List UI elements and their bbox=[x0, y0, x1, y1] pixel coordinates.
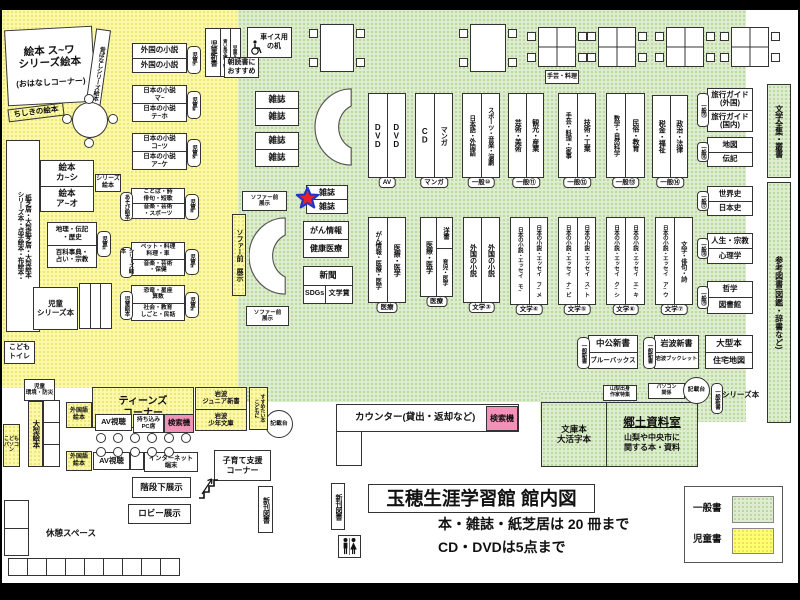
legend-general-label: 一般書 bbox=[693, 504, 722, 515]
chair[interactable] bbox=[638, 53, 647, 62]
shelf-column: 児童新書 bbox=[206, 29, 220, 76]
children-5-badge: 児童⑤ bbox=[187, 139, 201, 167]
shelf-column: 観光・産業 bbox=[526, 94, 544, 177]
chair[interactable] bbox=[655, 32, 664, 41]
large-picture-books-shelf: 大型絵本 bbox=[28, 401, 43, 467]
shelf-column: 洋書育児・医学 bbox=[436, 218, 452, 296]
shelf-cell: 文学賞 bbox=[326, 286, 352, 304]
chair[interactable] bbox=[113, 433, 123, 443]
shelf-cell: 岩波 ジュニア新書 bbox=[196, 388, 246, 409]
shelf-cell: ブルーバックス bbox=[589, 352, 637, 369]
new-books-shelf: 新刊図書 bbox=[331, 483, 345, 530]
bunko-large-print-shelf: 文庫本 大活字本 bbox=[542, 403, 607, 466]
iwanami-shinsho-shelf: 岩波新書 岩波ブックレット bbox=[654, 335, 699, 369]
chair[interactable] bbox=[108, 114, 118, 124]
shelf-column: 数学・自然科学 bbox=[607, 94, 625, 177]
newspaper-shelf: 新聞 SDGs 文学賞 bbox=[303, 266, 353, 304]
rest-space-seats bbox=[8, 558, 180, 576]
shelf-cell: 音楽・芸術 ・スポーツ bbox=[132, 203, 184, 218]
children-6-badge: 児童⑥ bbox=[187, 91, 201, 119]
shelf-cell: 外国の小説 bbox=[133, 58, 186, 73]
restroom-icon bbox=[338, 535, 361, 558]
shelf-category-badge: 文学③ bbox=[468, 302, 495, 313]
sofa-crescent[interactable] bbox=[249, 211, 289, 301]
writing-stand: 記載台 bbox=[265, 410, 293, 438]
library-floor-map: 絵本 ス~ワ シリーズ絵本 (おはなしコーナー) 昔ばなしシリーズ絵本 ちしきの… bbox=[0, 0, 800, 600]
bookshelf-unit: 世界史日本史一般⑰ bbox=[707, 186, 753, 216]
loan-rule-av: CD・DVDは5点まで bbox=[438, 537, 566, 557]
shelf-section: 育児・医学 bbox=[437, 248, 452, 296]
reading-table bbox=[598, 27, 636, 67]
shelf-column: 外国の小説 bbox=[464, 218, 481, 302]
chair[interactable] bbox=[164, 433, 174, 443]
shelf-cell: 伝記 bbox=[708, 152, 752, 167]
shelf-cell: 旅行ガイド (国内) bbox=[708, 110, 752, 132]
chair[interactable] bbox=[720, 32, 729, 41]
reading-table bbox=[470, 24, 506, 72]
chair[interactable] bbox=[459, 58, 468, 67]
chair[interactable] bbox=[130, 433, 140, 443]
chair[interactable] bbox=[113, 447, 123, 457]
av-viewing-seat[interactable]: AV視聴 bbox=[95, 414, 132, 431]
shelf-category-badge: 一般⑮ bbox=[697, 93, 709, 127]
children-jp-novels-ma-shelf: 日本の小説 マ~ 日本の小説 テ~ホ bbox=[132, 85, 187, 122]
craft-cooking-label: 手芸・料理 bbox=[545, 70, 579, 84]
shelf-cell: 絵本 ア~オ bbox=[41, 186, 93, 212]
sofa-front-display-rack: ソファー前 展示 bbox=[232, 214, 246, 296]
foreign-language-picture-books: 外国語 絵本 bbox=[66, 451, 92, 471]
play-picture-books-badge: あそび絵本 bbox=[120, 192, 133, 221]
children-3-badge: 児童③ bbox=[185, 249, 199, 275]
shelf-cell: 音楽・芸術 ・保健 bbox=[132, 259, 184, 276]
chair[interactable] bbox=[147, 447, 157, 457]
shelf-line: すすめたい本 bbox=[259, 394, 265, 422]
shelf-category-badge: 一般⑭ bbox=[656, 177, 684, 188]
shelf-cell: 新聞 bbox=[304, 267, 352, 285]
series-books-label: シリーズ本 bbox=[722, 389, 768, 401]
shelf-column: 日本の小説・エッセイ ク~シ bbox=[607, 218, 625, 304]
series-picture-books-badge: シリーズ絵本 bbox=[120, 247, 133, 278]
reading-table bbox=[320, 24, 354, 72]
chair[interactable] bbox=[84, 94, 94, 104]
shelf-category-badge: AV bbox=[379, 177, 396, 188]
chair[interactable] bbox=[130, 447, 140, 457]
reading-table bbox=[538, 27, 576, 67]
shelf-column: 文学・俳句・詩 bbox=[674, 218, 693, 304]
shelf-cell: がん情報 bbox=[304, 222, 348, 239]
bookshelf-unit: 外国の小説外国の小説文学③ bbox=[463, 217, 500, 303]
shelf-cell: 岩波新書 bbox=[655, 336, 698, 352]
shelf-cell: 旅行ガイド (外国) bbox=[708, 89, 752, 110]
bookshelf-unit: がん情報・医療・医学医療・医学医療 bbox=[368, 217, 406, 303]
shelf-cell: 外国の小説 bbox=[133, 44, 186, 58]
shelf-column: 日本の小説・エッセイ ナ~ビ bbox=[559, 218, 577, 304]
shelf-column: 外国の小説 bbox=[481, 218, 499, 302]
shelf-cell: 雑誌 bbox=[256, 108, 298, 125]
chair[interactable] bbox=[309, 29, 318, 38]
writing-stand: 記載台 bbox=[683, 377, 710, 404]
bookshelf-unit: CDマンガマンガ bbox=[415, 93, 453, 178]
reading-table bbox=[666, 27, 704, 67]
chair[interactable] bbox=[181, 433, 191, 443]
children-series-shelf: 児童 シリーズ本 bbox=[33, 287, 78, 330]
shelf-column: 日本語・外国語 bbox=[463, 94, 481, 177]
map-title: 玉穂生涯学習館 館内図 bbox=[368, 484, 595, 513]
shelf-line: シリーズ本・点字絵本・布絵本・ bbox=[16, 191, 23, 281]
shelf-column: スポーツ・音楽・演劇 bbox=[481, 94, 500, 177]
shelf-cell: 住宅地図 bbox=[706, 352, 752, 369]
shelf-cell: 中公新書 bbox=[589, 336, 637, 352]
shelf-cell: ペット・料理 料理・車 bbox=[132, 243, 184, 259]
children-pets-cooking-shelf: ペット・料理 料理・車 音楽・芸術 ・保健 bbox=[131, 242, 185, 276]
shelf-category-badge: 一般⑩ bbox=[468, 177, 495, 188]
shelf-column: 日本の小説・エッセイ エ~キ bbox=[625, 218, 644, 304]
chair[interactable] bbox=[706, 53, 715, 62]
bookshelf-unit: 手芸・料理・家事技術・工業一般⑫ bbox=[558, 93, 596, 178]
map-area: 絵本 ス~ワ シリーズ絵本 (おはなしコーナー) 昔ばなしシリーズ絵本 ちしきの… bbox=[0, 0, 800, 600]
shelf-category-badge: 一般⑫ bbox=[563, 177, 591, 188]
shelf-cell: 恐竜・星座 算数 bbox=[132, 286, 184, 303]
shelf-column: DVD bbox=[387, 94, 406, 177]
children-picture-books-badge: 児童絵本 bbox=[120, 291, 133, 320]
shelf-cell: 日本の小説 マ~ bbox=[133, 86, 186, 103]
computer-books-display: パソコン 関係 bbox=[648, 383, 685, 399]
chair[interactable] bbox=[84, 138, 94, 148]
chair[interactable] bbox=[164, 447, 174, 457]
opac-terminal[interactable]: 検索機 bbox=[164, 414, 194, 433]
shelf-category-badge: マンガ bbox=[420, 177, 448, 188]
magazine-shelf: 雑誌 雑誌 bbox=[255, 91, 299, 126]
shelf-category-badge: 医療 bbox=[426, 296, 447, 307]
bookshelf-unit: 人生・宗教心理学一般⑱ bbox=[707, 233, 753, 264]
chair[interactable] bbox=[706, 32, 715, 41]
chair[interactable] bbox=[459, 29, 468, 38]
shelf-cell: 哲学 bbox=[708, 282, 752, 297]
shelf-category-badge: 一般⑰ bbox=[697, 191, 709, 211]
stairs-icon bbox=[197, 472, 219, 500]
shelf-category-badge: 文学⑥ bbox=[612, 304, 639, 315]
parenting-support-corner: 子育て支援 コーナー bbox=[214, 450, 271, 481]
reference-books-shelf: 参考図書(図鑑・辞書など) bbox=[767, 182, 791, 423]
shelf-category-badge: 文学④ bbox=[516, 304, 543, 315]
shelf-column: DVD bbox=[369, 94, 387, 177]
chair[interactable] bbox=[771, 32, 780, 41]
chair[interactable] bbox=[655, 53, 664, 62]
children-language-arts-shelf: ことば・詩 俳句・短歌 音楽・芸術 ・スポーツ bbox=[131, 188, 185, 219]
chair[interactable] bbox=[356, 29, 365, 38]
rest-space-label: 休憩スペース bbox=[46, 527, 116, 539]
legend-children-label: 児童書 bbox=[693, 535, 722, 546]
new-books-shelf: 新刊図書 bbox=[258, 486, 273, 533]
shelf-cell: 心理学 bbox=[708, 248, 752, 263]
yamanashi-authors-display: 山梨出身 作家特集 bbox=[603, 385, 637, 401]
shelf-cell: 岩波 少年文庫 bbox=[196, 409, 246, 431]
chuko-shinsho-shelf: 中公新書 ブルーバックス bbox=[588, 335, 638, 369]
bookshelf-unit: 日本の小説・エッセイ モ~日本の小説・エッセイ フ~メ文学④ bbox=[510, 217, 548, 305]
shelf-cell: 人生・宗教 bbox=[708, 234, 752, 248]
general-shinsho-badge: 一般新書 bbox=[643, 337, 656, 369]
kids-computer[interactable]: こども パソコン bbox=[3, 424, 20, 467]
shelf-column: がん情報・医療・医学 bbox=[369, 218, 387, 302]
shelf-category-badge: 文学⑤ bbox=[564, 304, 591, 315]
bookshelf-unit: 日本の小説・エッセイ ク~シ日本の小説・エッセイ エ~キ文学⑥ bbox=[606, 217, 645, 305]
shelf-column: 日本の小説・エッセイ ア~ウ bbox=[656, 218, 674, 304]
shelf-line: 紙芝居・大型紙芝居・大型絵本 bbox=[23, 194, 30, 278]
shelf-section: 洋書 bbox=[437, 218, 452, 248]
chair[interactable] bbox=[638, 32, 647, 41]
legend: 一般書 児童書 bbox=[684, 486, 783, 563]
magazine-shelf: 雑誌 雑誌 bbox=[255, 132, 299, 167]
shelf-column: 政治・法律 bbox=[670, 96, 688, 177]
iwanami-junior-shelf: 岩波 ジュニア新書 岩波 少年文庫 bbox=[195, 387, 247, 431]
sofa-front-display: ソファー前 展示 bbox=[242, 191, 287, 211]
children-2-badge: 児童② bbox=[185, 292, 199, 318]
shelf-cell: 地図 bbox=[708, 138, 752, 152]
shelf-cell: SDGs bbox=[304, 286, 326, 304]
service-counter-return bbox=[336, 431, 362, 466]
round-table bbox=[72, 102, 108, 138]
shelf-category-badge: 一般⑪ bbox=[512, 177, 540, 188]
picture-books-ka-shi-shelf: 絵本 カ~シ 絵本 ア~オ bbox=[40, 160, 94, 212]
shelf-cell: 地理・伝記 ・歴史 bbox=[48, 223, 96, 245]
shelf-cell: 雑誌 bbox=[256, 92, 298, 108]
large-books-shelf: 大型本 住宅地図 bbox=[705, 335, 753, 369]
chair[interactable] bbox=[527, 53, 536, 62]
legend-row: 児童書 bbox=[693, 528, 774, 554]
legend-row: 一般書 bbox=[693, 496, 774, 523]
bookshelf-unit: 日本の小説・エッセイ ナ~ビ日本の小説・エッセイ ス~ト文学⑤ bbox=[558, 217, 596, 305]
shelf-cell: 世界史 bbox=[708, 187, 752, 201]
shelf-column: 日本の小説・エッセイ モ~ bbox=[511, 218, 529, 304]
shelf-rack bbox=[4, 500, 29, 556]
shelf-category-badge: 一般⑱ bbox=[697, 238, 709, 259]
shelf-column: 日本の小説・エッセイ フ~メ bbox=[529, 218, 548, 304]
shelf-category-badge: 一般⑲ bbox=[697, 286, 709, 309]
shelf-rack bbox=[43, 400, 60, 467]
kids-toilet: こども トイレ bbox=[4, 341, 35, 364]
local-history-room-title: 郷土資料室 bbox=[623, 417, 681, 430]
chair[interactable] bbox=[587, 53, 596, 62]
bookshelf-unit: 旅行ガイド (外国)旅行ガイド (国内)一般⑮ bbox=[707, 88, 753, 132]
picture-books-corner: 絵本 ス~ワ シリーズ絵本 (おはなしコーナー) bbox=[4, 26, 96, 107]
shelf-cell: 日本の小説 テ~ホ bbox=[133, 103, 186, 121]
shelf-column: 技術・工業 bbox=[577, 94, 596, 177]
shelf-cell: 岩波ブックレット bbox=[655, 352, 698, 369]
general-shinsho-badge: 一般新書 bbox=[577, 337, 590, 369]
children-dinosaur-society-shelf: 恐竜・星座 算数 社会・教育 しごと・民話 bbox=[131, 285, 185, 321]
sofa-crescent[interactable] bbox=[314, 87, 356, 167]
bookshelf-unit: 地図伝記一般⑯ bbox=[707, 137, 753, 167]
shelf-cell: 日本の小説 コ~ツ bbox=[133, 134, 186, 151]
foreign-language-picture-books: 外国語 絵本 bbox=[66, 402, 92, 428]
general-shinsho-badge: 一般新書 bbox=[711, 383, 723, 414]
chair[interactable] bbox=[508, 58, 517, 67]
children-1-badge: 児童① bbox=[97, 231, 111, 257]
shelf-category-badge: 医療 bbox=[377, 302, 398, 313]
bookshelf-unit: DVDDVDAV bbox=[368, 93, 406, 178]
byod-pc-seat[interactable]: 持ち込み PC席 bbox=[133, 414, 164, 433]
bookshelf-unit: 哲学図書館一般⑲ bbox=[707, 281, 753, 314]
shelf-cell: 健康医療 bbox=[304, 239, 348, 257]
storytime-corner-label: (おはなしコーナー) bbox=[16, 76, 86, 89]
shelf-column: マンガ bbox=[434, 94, 453, 177]
shelf-column: 芸術・美術 bbox=[509, 94, 526, 177]
chair[interactable] bbox=[147, 433, 157, 443]
bookshelf-unit: 医療・医学洋書育児・医学医療 bbox=[420, 217, 453, 297]
literature-collections-shelf: 文学全集・叢書 bbox=[767, 84, 791, 178]
series-picture-book-badge: シリーズ 絵本 bbox=[95, 174, 121, 192]
chair[interactable] bbox=[578, 53, 587, 62]
children-environment-shelf: 児童 環境・防災 bbox=[24, 379, 55, 401]
shelf-column: 医療・医学 bbox=[387, 218, 406, 302]
chair[interactable] bbox=[720, 53, 729, 62]
bookshelf-unit: 日本語・外国語スポーツ・音楽・演劇一般⑩ bbox=[462, 93, 500, 178]
shelf-column: CD bbox=[416, 94, 434, 177]
geography-encyclopedia-shelf: 地理・伝記 ・歴史 百科事典・ 占い・宗教 bbox=[47, 222, 97, 268]
shelf-column: 税金・福祉 bbox=[653, 96, 670, 177]
local-history-room-desc: 山梨や中央市に 関する本・資料 bbox=[624, 433, 680, 451]
lobby-display: ロビー展示 bbox=[128, 504, 191, 524]
picture-books-label: 絵本 ス~ワ シリーズ絵本 bbox=[18, 43, 82, 70]
shelf-cell: 図書館 bbox=[708, 297, 752, 313]
shelf-cell: 百科事典・ 占い・宗教 bbox=[48, 245, 96, 268]
shelf-rack bbox=[79, 283, 112, 329]
morning-reading-picks: 朝読書に おすすめ bbox=[224, 57, 259, 78]
shelf-cell: 日本の小説 ア~ケ bbox=[133, 151, 186, 169]
wheelchair-icon bbox=[250, 40, 262, 55]
recommended-for-kids-shelf: こどもに すすめたい本 bbox=[249, 387, 268, 430]
bookshelf-unit: 日本の小説・エッセイ ア~ウ文学・俳句・詩文学⑦ bbox=[655, 217, 693, 305]
shelf-cell: 雑誌 bbox=[256, 133, 298, 149]
bookshelf-unit: 税金・福祉政治・法律一般⑭ bbox=[652, 95, 688, 178]
chair[interactable] bbox=[587, 32, 596, 41]
shelf-column: 民俗・教育 bbox=[625, 94, 644, 177]
chair[interactable] bbox=[62, 114, 72, 124]
shelf-cell: ことば・詩 俳句・短歌 bbox=[132, 189, 184, 203]
reading-table bbox=[731, 27, 769, 67]
chair[interactable] bbox=[356, 58, 365, 67]
shelf-cell: 雑誌 bbox=[256, 149, 298, 166]
loan-rule-books: 本・雑誌・紙芝居は 20 冊まで bbox=[438, 514, 629, 534]
chair[interactable] bbox=[96, 447, 106, 457]
shelf-column: 手芸・料理・家事 bbox=[559, 94, 577, 177]
cancer-info-health-shelf: がん情報 健康医療 bbox=[303, 221, 349, 258]
shelf-column: 医療・医学 bbox=[421, 218, 436, 296]
shelf-category-badge: 文学⑦ bbox=[661, 304, 688, 315]
local-history-room: 文庫本 大活字本 郷土資料室 山梨や中央市に 関する本・資料 bbox=[541, 402, 698, 467]
shelf-category-badge: 一般⑯ bbox=[697, 142, 709, 162]
children-jp-novels-ko-shelf: 日本の小説 コ~ツ 日本の小説 ア~ケ bbox=[132, 133, 187, 170]
bookshelf-unit: 数学・自然科学民俗・教育一般⑬ bbox=[606, 93, 645, 178]
children-4-badge: 児童④ bbox=[185, 194, 199, 220]
legend-general-swatch bbox=[732, 496, 774, 523]
shelf-cell: 社会・教育 しごと・民話 bbox=[132, 303, 184, 321]
bookshelf-unit: 芸術・美術観光・産業一般⑪ bbox=[508, 93, 544, 178]
chair[interactable] bbox=[508, 29, 517, 38]
chair[interactable] bbox=[96, 433, 106, 443]
chair[interactable] bbox=[309, 58, 318, 67]
shelf-cell: 大型本 bbox=[706, 336, 752, 352]
chair[interactable] bbox=[527, 32, 536, 41]
children-foreign-novels-shelf: 外国の小説 外国の小説 bbox=[132, 43, 187, 73]
chair[interactable] bbox=[578, 32, 587, 41]
legend-children-swatch bbox=[732, 528, 774, 554]
shelf-cell: 絵本 カ~シ bbox=[41, 161, 93, 186]
chair[interactable] bbox=[771, 53, 780, 62]
under-stairs-display: 階段下展示 bbox=[132, 477, 191, 498]
shelf-column: 日本の小説・エッセイ ス~ト bbox=[577, 218, 596, 304]
opac-terminal[interactable]: 検索機 bbox=[486, 406, 518, 431]
children-7-badge: 児童⑦ bbox=[187, 46, 201, 74]
shelf-cell: 日本史 bbox=[708, 201, 752, 216]
you-are-here-star-icon bbox=[295, 186, 320, 211]
sofa-front-display: ソファー前 展示 bbox=[246, 306, 289, 326]
shelf-category-badge: 一般⑬ bbox=[612, 177, 640, 188]
